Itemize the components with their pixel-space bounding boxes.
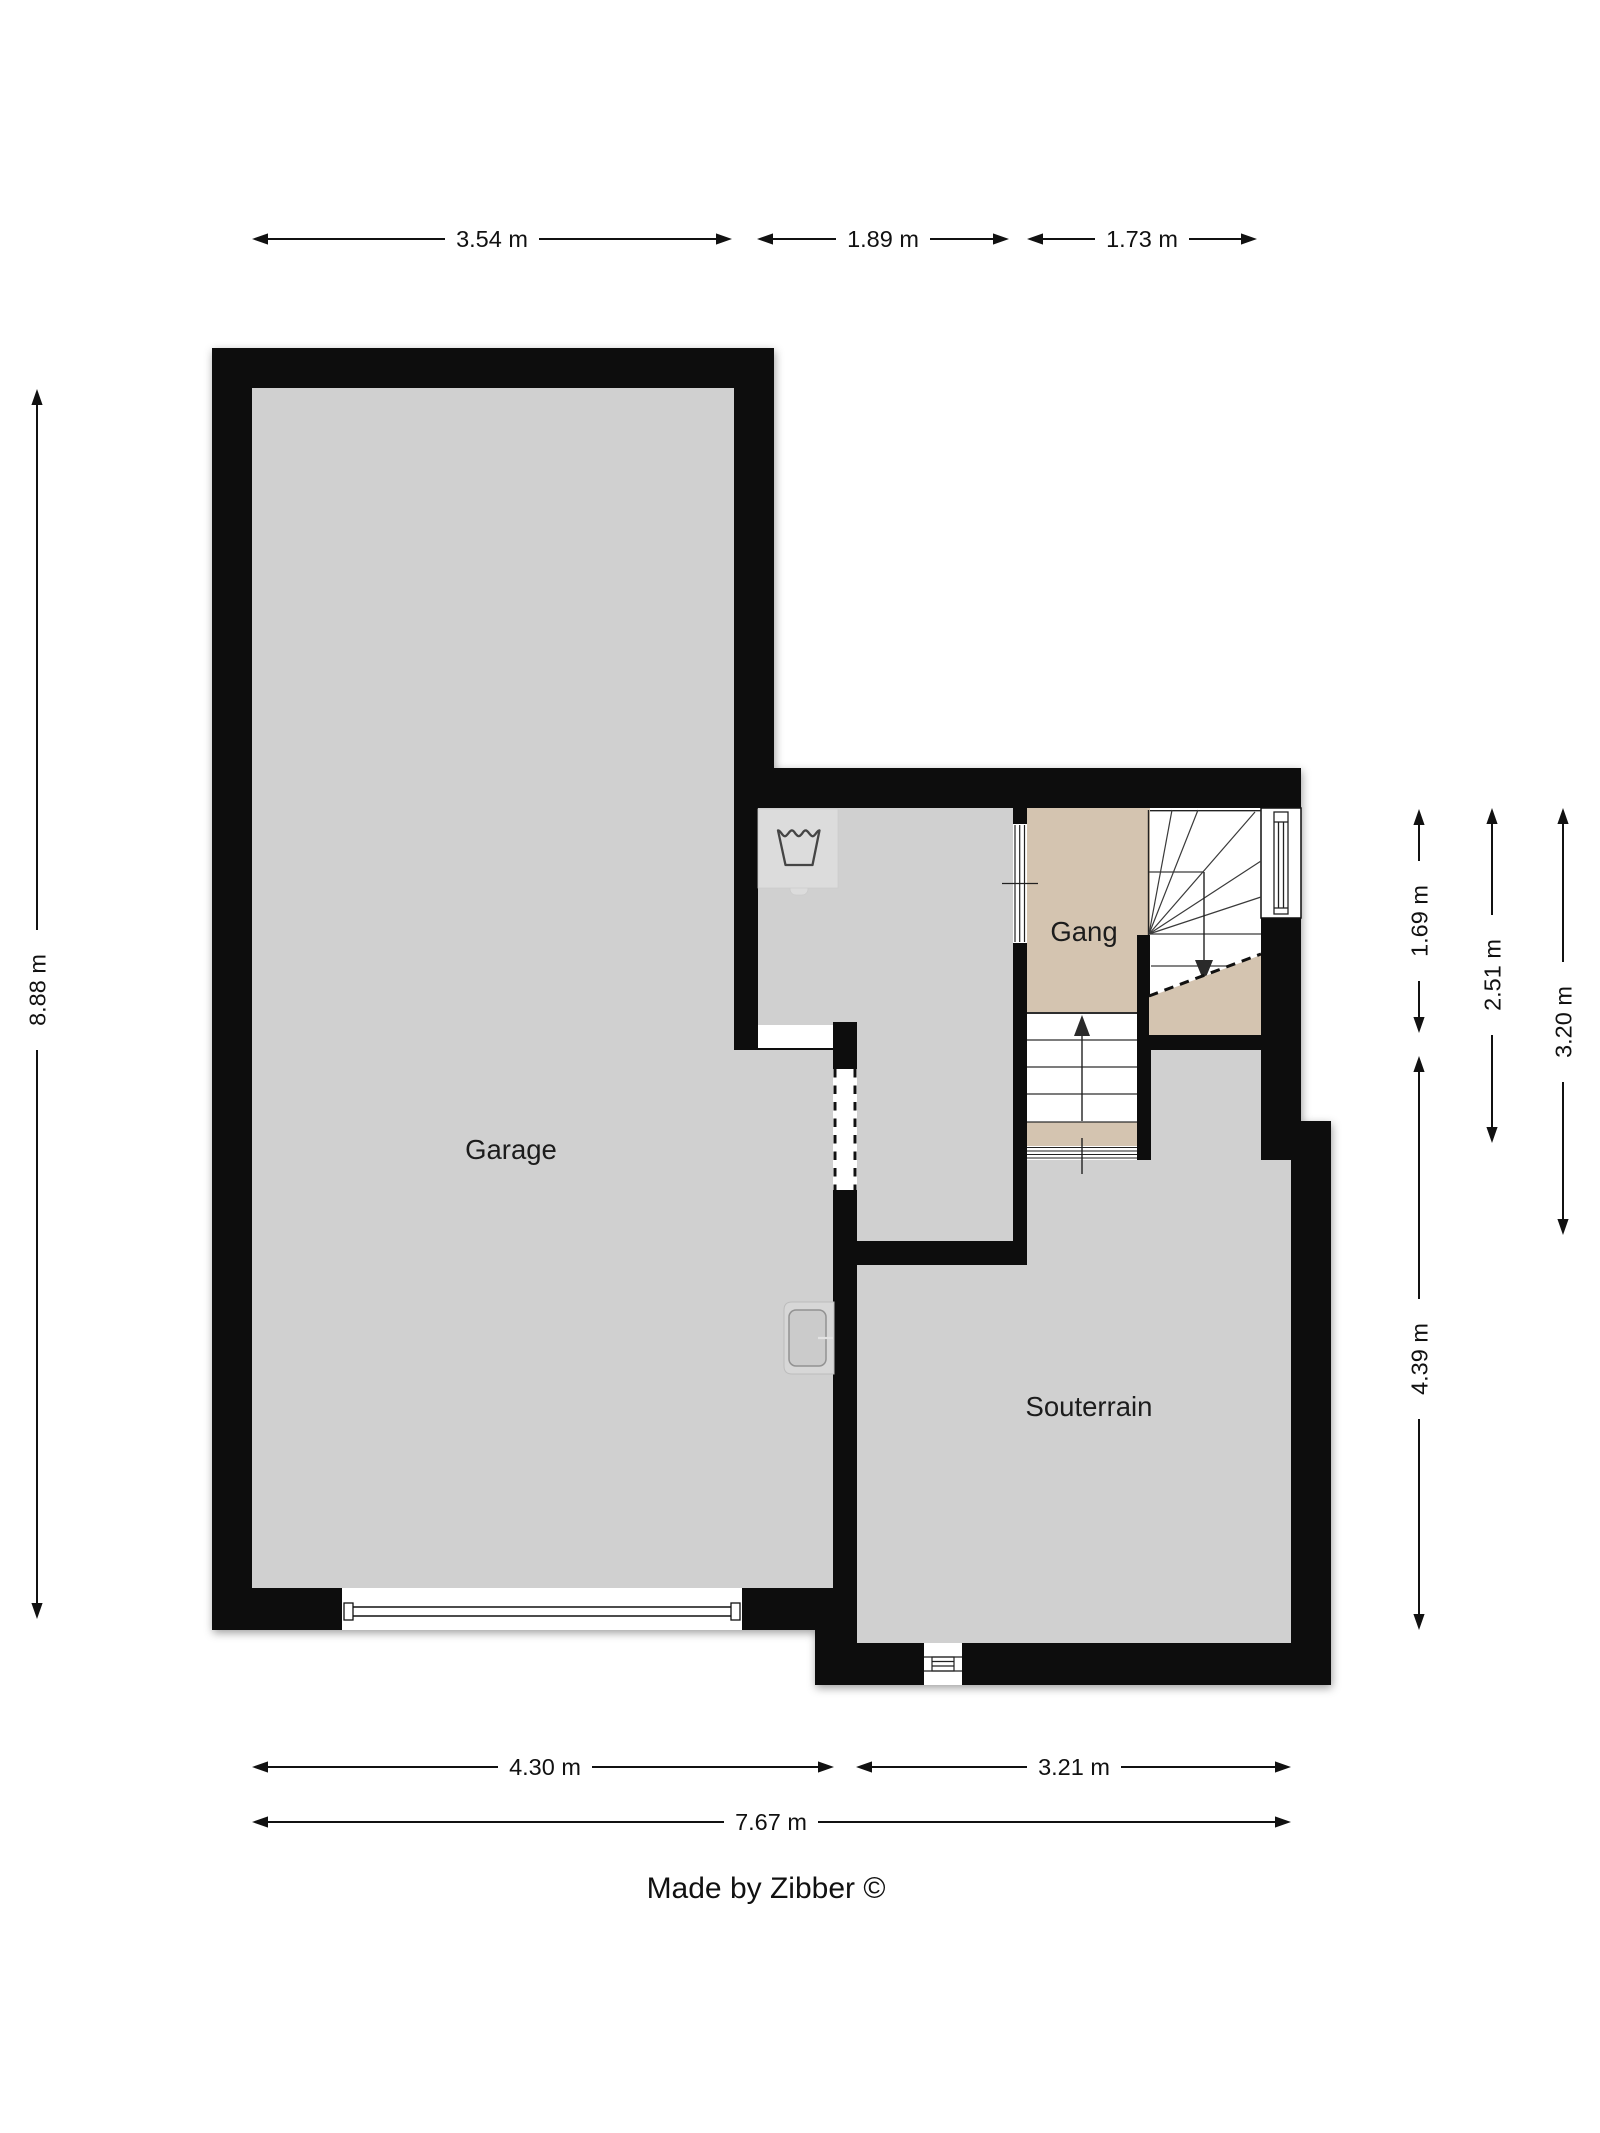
svg-text:3.20 m: 3.20 m bbox=[1551, 986, 1577, 1058]
svg-text:Gang: Gang bbox=[1050, 916, 1117, 947]
svg-text:4.39 m: 4.39 m bbox=[1407, 1323, 1433, 1395]
svg-text:Made by Zibber ©: Made by Zibber © bbox=[647, 1872, 886, 1905]
svg-text:7.67 m: 7.67 m bbox=[735, 1809, 807, 1835]
svg-text:1.89 m: 1.89 m bbox=[847, 226, 919, 252]
svg-text:Souterrain: Souterrain bbox=[1026, 1391, 1153, 1422]
svg-text:1.73 m: 1.73 m bbox=[1106, 226, 1178, 252]
svg-text:2.51 m: 2.51 m bbox=[1480, 939, 1506, 1011]
svg-text:1.69 m: 1.69 m bbox=[1407, 885, 1433, 957]
svg-text:4.30 m: 4.30 m bbox=[509, 1754, 581, 1780]
svg-text:8.88 m: 8.88 m bbox=[25, 954, 51, 1026]
svg-text:Garage: Garage bbox=[465, 1134, 557, 1165]
svg-text:3.21 m: 3.21 m bbox=[1038, 1754, 1110, 1780]
svg-text:3.54 m: 3.54 m bbox=[456, 226, 528, 252]
